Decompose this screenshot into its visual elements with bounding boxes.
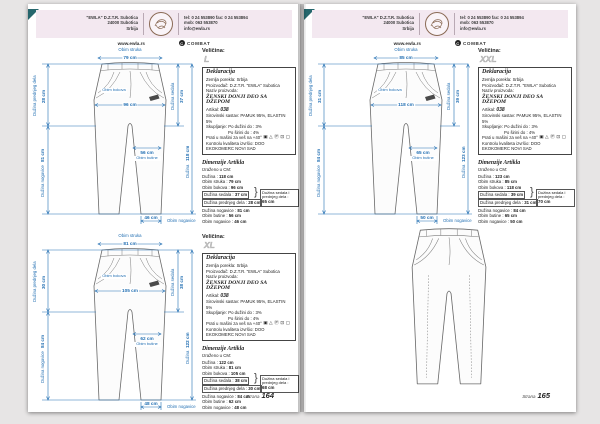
dim-value: 39 cm [511,192,523,197]
dim-value: 118 cm [219,174,233,179]
composition-line: Sirovinski sastav: PAMUK 95%, ELASTIN 5% [206,299,292,310]
note-value: 68 cm [262,385,274,390]
iron-icon: ⊡ [556,135,560,140]
leg-length-group: Dužina nogavice84 cm [40,320,45,398]
dim-label: Obim butine : [202,213,228,218]
website-text: www.ewla.rs [394,41,421,46]
declaration-product-kind: Naziv proizvoda: [206,88,292,94]
article-number: 038 [220,293,228,299]
dim-label: Dužina nogavice : [478,208,512,213]
leg-length-value: 81 cm [40,149,45,162]
composition-line: Sirovinski sastav: PAMUK 95%, ELASTIN 5% [482,113,568,124]
page-footer: Strana 165 [522,391,550,400]
header-divider [178,13,179,35]
dim-label: Obim bokova : [202,185,230,190]
dim-value: 96 cm [231,185,243,190]
pants-diagram: Obim struka 81 cm Obim bokova 105 cm Duž… [32,234,200,412]
dim-label: Dužina sedala : [204,378,234,383]
spec-text-column: Veličina: L Deklaracija Zemlja porekla: … [202,48,296,225]
opening-measure-value: 46 cm [143,215,158,220]
seat-length-label: Dužina sedala [170,68,175,124]
composition-line: Sirovinski sastav: PAMUK 95%, ELASTIN 5% [206,113,292,124]
dim-row: Obim nogavice : 48 cm [202,405,296,411]
company-line: Srbija [312,26,414,31]
dim-label: Dužina nogavice : [202,208,236,213]
hips-measure-label: Obim bokova [101,88,127,93]
total-length-label: Dužina [185,164,190,177]
dim-label: Dužina nogavice : [202,394,236,399]
declaration-title: Deklaracija [206,256,292,262]
dim-label: Obim nogavice : [202,219,233,224]
iron-icon: ⊡ [280,135,284,140]
dim-value: 84 cm [513,208,525,213]
total-length-group: Dužina122 cm [185,296,190,400]
seat-length-label: Dužina sedala [446,68,451,124]
hips-measure-value: 105 cm [121,288,139,293]
dim-value: 62 cm [229,399,241,404]
tumble-dry-icon: ▢ [562,135,566,140]
note-label: Dužina sedala i prednjeg dela : [262,190,289,200]
wash-40-icon: ▣ [539,135,543,140]
hips-measure-value: 118 cm [397,102,415,107]
dim-label: Dužina : [202,360,218,365]
dim-value: 123 cm [495,174,510,179]
waist-measure-label: Obim struka [118,233,141,238]
total-length-group: Dužina123 cm [461,110,466,214]
dim-label: Dužina : [202,174,218,179]
note-label: Dužina sedala i prednjeg dela : [538,190,565,200]
dimensions-subtitle: Izraženo u CM: [202,167,296,172]
leg-length-value: 84 cm [40,335,45,348]
dry-clean-p-icon: Ⓟ [550,135,555,140]
seat-length-value: 39 cm [455,80,460,112]
declaration-box: Deklaracija Zemlja porekla: Srbija Proiz… [202,253,296,341]
total-length-value: 123 cm [461,146,466,162]
iron-icon: ⊡ [280,321,284,326]
combat-brand-icon: C [179,40,185,46]
total-length-group: Dužina118 cm [185,110,190,214]
dim-label: Dužina sedala : [204,192,234,197]
page-header: "EWLA" D.Z.T.R. Subotica 24000 Subotica … [36,10,292,38]
size-value: XXL [480,54,572,64]
waist-measure-value: 81 cm [122,241,137,246]
dimension-rows: Dužina : 118 cm Obim struka : 79 cm Obim… [202,174,296,225]
declaration-product-kind: Naziv proizvoda: [206,274,292,280]
dim-label: Obim butine : [478,213,504,218]
leg-length-group: Dužina nogavice84 cm [316,134,321,212]
declaration-box: Deklaracija Zemlja porekla: Srbija Proiz… [202,67,296,155]
dimensions-title: Dimenzije Artikla [202,160,296,166]
page-number: 165 [537,391,550,400]
dim-value: 56 cm [229,213,241,218]
total-length-label: Dužina [461,165,466,178]
pants-diagram: Obim struka 79 cm Obim bokova 96 cm Duži… [32,48,200,226]
dim-row-boxed: Dužina sedala : 38 cm [202,377,249,385]
total-length-value: 118 cm [185,146,190,161]
dim-row: Obim nogavice : 46 cm [202,219,296,225]
dim-label: Obim bokova : [202,371,230,376]
size-value: L [204,54,296,64]
front-length-value: 31 cm [317,82,322,110]
no-bleach-icon: △ [269,321,273,326]
quality-control-line: Kontrolu kvaliteta izvršio: DOO EKOKOMER… [206,141,292,152]
product-name: ŽENSKI DONJI DEO SA DŽEPOM [206,281,292,292]
waist-measure-value: 79 cm [122,55,137,60]
dim-value: 65 cm [505,213,517,218]
dim-value: 38 cm [235,378,247,383]
dim-label: Obim struka : [478,179,504,184]
leg-length-value: 84 cm [316,149,321,162]
dimensions-title: Dimenzije Artikla [478,160,572,166]
catalog-page-left: "EWLA" D.Z.T.R. Subotica 24000 Subotica … [28,4,300,412]
dim-value: 48 cm [234,405,246,410]
waist-measure-value: 85 cm [398,55,413,60]
spec-text-column: Veličina: XL Deklaracija Zemlja porekla:… [202,234,296,411]
note-value: 70 cm [538,199,550,204]
seat-length-value: 37 cm [179,80,184,112]
header-divider [419,13,420,35]
plain-pants-drawing [406,220,490,397]
dim-value: 85 cm [505,179,517,184]
dim-label: Dužina prednjeg dela : [480,200,523,205]
thigh-measure-label: Obim butine [133,342,161,347]
front-length-value: 28 cm [41,82,46,110]
note-value: 65 cm [262,199,274,204]
dim-label: Dužina prednjeg dela : [204,386,247,391]
section-size-l: Obim struka 79 cm Obim bokova 96 cm Duži… [32,48,296,230]
leg-length-label: Dužina nogavice [40,351,45,383]
dim-value: 81 cm [237,208,249,213]
pants-diagram: Obim struka 85 cm Obim bokova 118 cm Duž… [308,48,476,226]
combat-brand-icon: C [455,40,461,46]
dimension-rows: Dužina : 122 cm Obim struka : 81 cm Obim… [202,360,296,411]
leg-length-label: Dužina nogavice [316,165,321,197]
dim-row-boxed: Dužina prednjeg dela : 28 cm [202,199,262,207]
waist-measure-label: Obim struka [118,47,141,52]
leg-length-label: Dužina nogavice [40,165,45,197]
front-length-label: Dužina prednjeg dela [308,66,313,126]
article-label: Artikal: [482,107,495,112]
ewla-logo-icon [425,12,449,36]
brand-mark: C COMBAT [179,40,210,46]
opening-measure-label: Obim nogavice [167,218,196,223]
dimensions-title: Dimenzije Artikla [202,346,296,352]
header-divider [143,13,144,35]
company-address: "EWLA" D.Z.T.R. Subotica 24000 Subotica … [36,10,138,38]
no-bleach-icon: △ [545,135,549,140]
wash-40-icon: ▣ [263,321,267,326]
waist-measure-label: Obim struka [394,47,417,52]
contact-line: info@ewla.rs [184,26,248,31]
dim-value: 118 cm [507,185,521,190]
care-text: Prati u mašini za veš na +40° [206,321,262,327]
dim-label: Dužina : [478,174,494,179]
thigh-measure-label: Obim butine [409,156,437,161]
front-length-label: Dužina prednjeg dela [32,252,37,312]
ewla-logo-icon [149,12,173,36]
quality-control-line: Kontrolu kvaliteta izvršio: DOO EKOKOMER… [206,327,292,338]
brand-name: COMBAT [187,41,210,46]
thigh-measure-label: Obim butine [133,156,161,161]
hips-measure-label: Obim bokova [101,274,127,279]
opening-measure-label: Obim nogavice [167,404,196,409]
company-address: "EWLA" D.Z.T.R. Subotica 24000 Subotica … [312,10,414,38]
dim-label: Dužina prednjeg dela : [204,200,247,205]
article-number: 038 [220,107,228,113]
opening-measure-value: 48 cm [143,401,158,406]
note-label: Dužina sedala i prednjeg dela : [262,376,289,386]
header-subband: www.ewla.rs C COMBAT [312,40,568,46]
dim-value: 28 cm [248,200,260,205]
dim-label: Obim struka : [202,179,228,184]
header-divider [454,13,455,35]
total-length-value: 122 cm [185,332,190,348]
combined-length-note: Dužina sedala i prednjeg dela : 65 cm [260,189,299,208]
spec-text-column: Veličina: XXL Deklaracija Zemlja porekla… [478,48,572,225]
page-number: 164 [261,391,274,400]
opening-measure-value: 50 cm [419,215,434,220]
dim-value: 79 cm [229,179,241,184]
note-brace: } [254,190,258,196]
dim-row-boxed: Dužina sedala : 37 cm [202,191,249,199]
catalog-page-right: "EWLA" D.Z.T.R. Subotica 24000 Subotica … [304,4,576,412]
care-text: Prati u mašini za veš na +40° [482,135,538,141]
company-contact: tel: 0 24 553890 fax: 0 24 553894 mob: 0… [184,10,248,38]
section-size-xxl: Obim struka 85 cm Obim bokova 118 cm Duž… [308,48,572,230]
wash-40-icon: ▣ [263,135,267,140]
dim-row: Obim nogavice : 50 cm [478,219,572,225]
dim-value: 105 cm [231,371,246,376]
hips-measure-value: 96 cm [122,102,137,107]
size-value: XL [204,240,296,250]
article-number: 038 [496,107,504,113]
dimensions-subtitle: Izraženo u CM: [202,353,296,358]
company-line: Srbija [36,26,138,31]
hips-measure-label: Obim bokova [377,88,403,93]
dim-value: 46 cm [234,219,246,224]
article-label: Artikal: [206,107,219,112]
dimension-rows: Dužina : 123 cm Obim struka : 85 cm Obim… [478,174,572,225]
dim-row-boxed: Dužina sedala : 39 cm [478,191,525,199]
declaration-title: Deklaracija [206,70,292,76]
product-name: ŽENSKI DONJI DEO SA DŽEPOM [482,95,568,106]
section-size-xl: Obim struka 81 cm Obim bokova 105 cm Duž… [32,234,296,416]
dim-label: Obim butine : [202,399,228,404]
dimensions-subtitle: Izraženo u CM: [478,167,572,172]
note-brace: } [254,376,258,382]
website-text: www.ewla.rs [118,41,145,46]
note-brace: } [530,190,534,196]
article-label: Artikal: [206,293,219,298]
brand-mark: C COMBAT [455,40,486,46]
dry-clean-p-icon: Ⓟ [274,135,279,140]
dim-value: 50 cm [510,219,522,224]
total-length-label: Dužina [185,351,190,364]
product-name: ŽENSKI DONJI DEO SA DŽEPOM [206,95,292,106]
tumble-dry-icon: ▢ [286,321,290,326]
declaration-title: Deklaracija [482,70,568,76]
page-spine-shadow [298,4,306,412]
no-bleach-icon: △ [269,135,273,140]
care-text: Prati u mašini za veš na +40° [206,135,262,141]
tumble-dry-icon: ▢ [286,135,290,140]
header-subband: www.ewla.rs C COMBAT [36,40,292,46]
front-length-value: 30 cm [41,268,46,296]
declaration-product-kind: Naziv proizvoda: [482,88,568,94]
seat-length-value: 38 cm [179,266,184,298]
dim-label: Obim nogavice : [202,405,233,410]
contact-line: info@ewla.rs [460,26,524,31]
page-footer-label: Strana [246,394,259,399]
front-length-label: Dužina prednjeg dela [32,66,37,126]
dim-value: 122 cm [219,360,234,365]
leg-length-group: Dužina nogavice81 cm [40,134,45,212]
declaration-box: Deklaracija Zemlja porekla: Srbija Proiz… [478,67,572,155]
dry-clean-p-icon: Ⓟ [274,321,279,326]
dim-label: Obim struka : [202,365,228,370]
dim-label: Dužina sedala : [480,192,510,197]
dim-row-boxed: Dužina prednjeg dela : 31 cm [478,199,538,207]
dim-label: Obim bokova : [478,185,506,190]
page-footer: Strana 164 [246,391,274,400]
page-header: "EWLA" D.Z.T.R. Subotica 24000 Subotica … [312,10,568,38]
brand-name: COMBAT [463,41,486,46]
dim-value: 37 cm [235,192,247,197]
page-footer-label: Strana [522,394,535,399]
quality-control-line: Kontrolu kvaliteta izvršio: DOO EKOKOMER… [482,141,568,152]
company-contact: tel: 0 24 553890 fax: 0 24 553894 mob: 0… [460,10,524,38]
dim-value: 81 cm [229,365,241,370]
combined-length-note: Dužina sedala i prednjeg dela : 70 cm [536,189,575,208]
dim-value: 31 cm [524,200,536,205]
seat-length-label: Dužina sedala [170,254,175,310]
